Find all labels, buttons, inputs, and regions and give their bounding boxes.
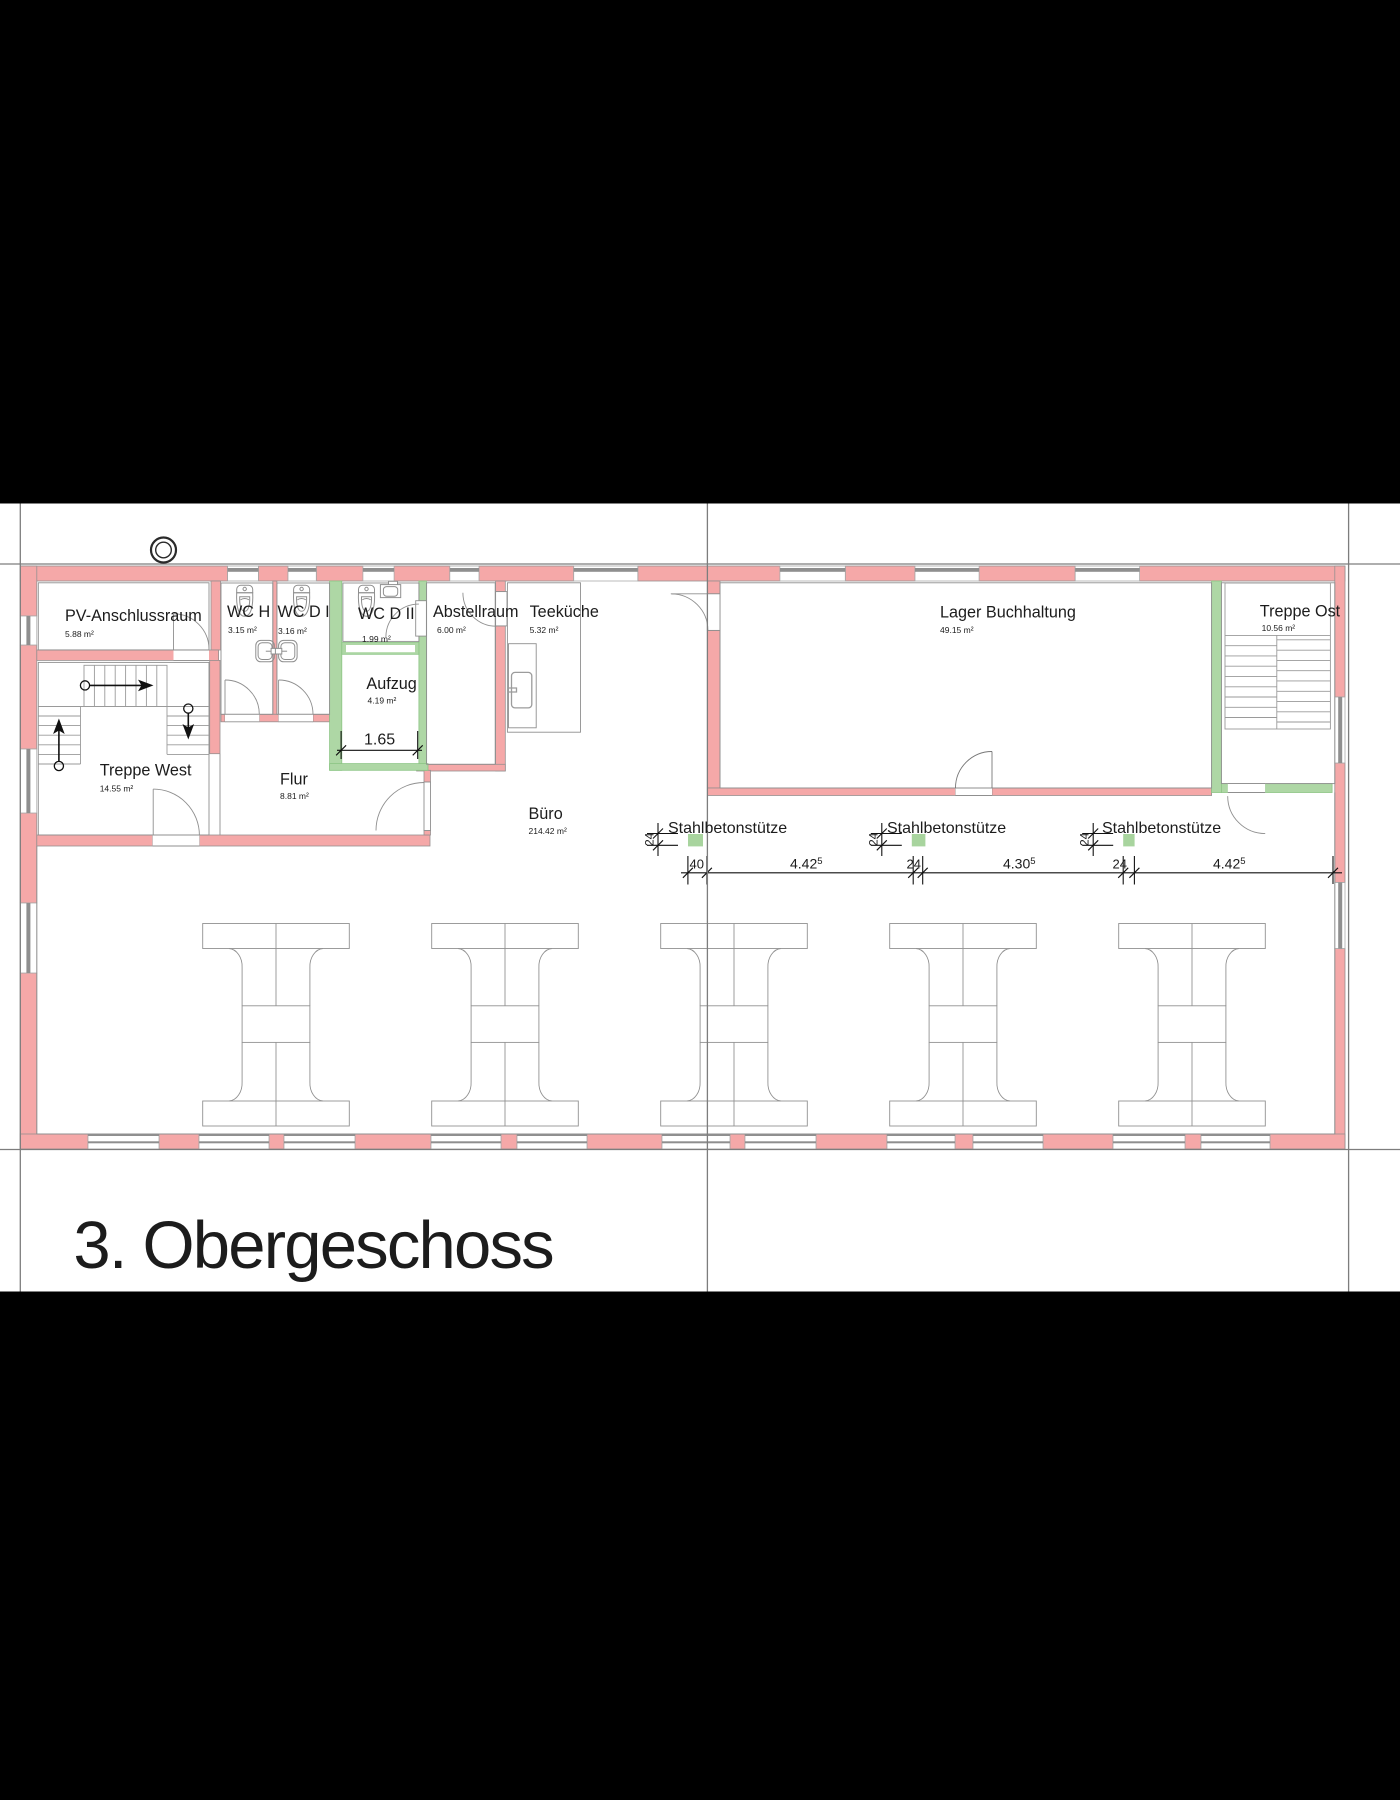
svg-text:49.15 m²: 49.15 m² <box>940 625 974 635</box>
svg-text:Stahlbetonstütze: Stahlbetonstütze <box>1102 820 1221 837</box>
svg-text:WC D II: WC D II <box>358 605 415 623</box>
svg-text:40: 40 <box>690 857 704 872</box>
svg-text:5.32 m²: 5.32 m² <box>530 625 559 635</box>
svg-text:Teeküche: Teeküche <box>530 603 599 621</box>
svg-text:WC D I: WC D I <box>278 603 330 621</box>
svg-text:5.88 m²: 5.88 m² <box>65 629 94 639</box>
svg-text:6.00 m²: 6.00 m² <box>437 625 466 635</box>
svg-text:Büro: Büro <box>529 805 563 823</box>
svg-text:8.81 m²: 8.81 m² <box>280 791 309 801</box>
svg-text:24: 24 <box>1078 832 1092 846</box>
svg-text:Stahlbetonstütze: Stahlbetonstütze <box>668 820 787 837</box>
svg-text:Flur: Flur <box>280 771 308 789</box>
svg-text:Abstellraum: Abstellraum <box>433 603 518 621</box>
svg-text:Aufzug: Aufzug <box>366 675 416 693</box>
svg-text:Treppe Ost: Treppe Ost <box>1260 603 1341 621</box>
svg-text:Treppe West: Treppe West <box>100 762 192 780</box>
svg-text:1.99 m²: 1.99 m² <box>362 634 391 644</box>
svg-text:24: 24 <box>643 832 657 846</box>
svg-text:14.55 m²: 14.55 m² <box>100 784 134 794</box>
svg-text:3. Obergeschoss: 3. Obergeschoss <box>73 1208 553 1283</box>
svg-text:10.56 m²: 10.56 m² <box>1262 623 1296 633</box>
svg-text:1.65: 1.65 <box>364 732 395 749</box>
svg-text:WC H: WC H <box>227 603 270 621</box>
svg-text:3.15 m²: 3.15 m² <box>228 625 257 635</box>
svg-text:214.42 m²: 214.42 m² <box>529 826 567 836</box>
svg-text:24: 24 <box>907 857 921 872</box>
svg-text:24: 24 <box>866 832 880 846</box>
svg-text:4.19 m²: 4.19 m² <box>368 696 397 706</box>
svg-text:Stahlbetonstütze: Stahlbetonstütze <box>887 820 1006 837</box>
svg-text:24: 24 <box>1113 857 1127 872</box>
svg-text:3.16 m²: 3.16 m² <box>278 626 307 636</box>
svg-text:PV-Anschlussraum: PV-Anschlussraum <box>65 607 202 625</box>
svg-text:Lager Buchhaltung: Lager Buchhaltung <box>940 604 1076 622</box>
